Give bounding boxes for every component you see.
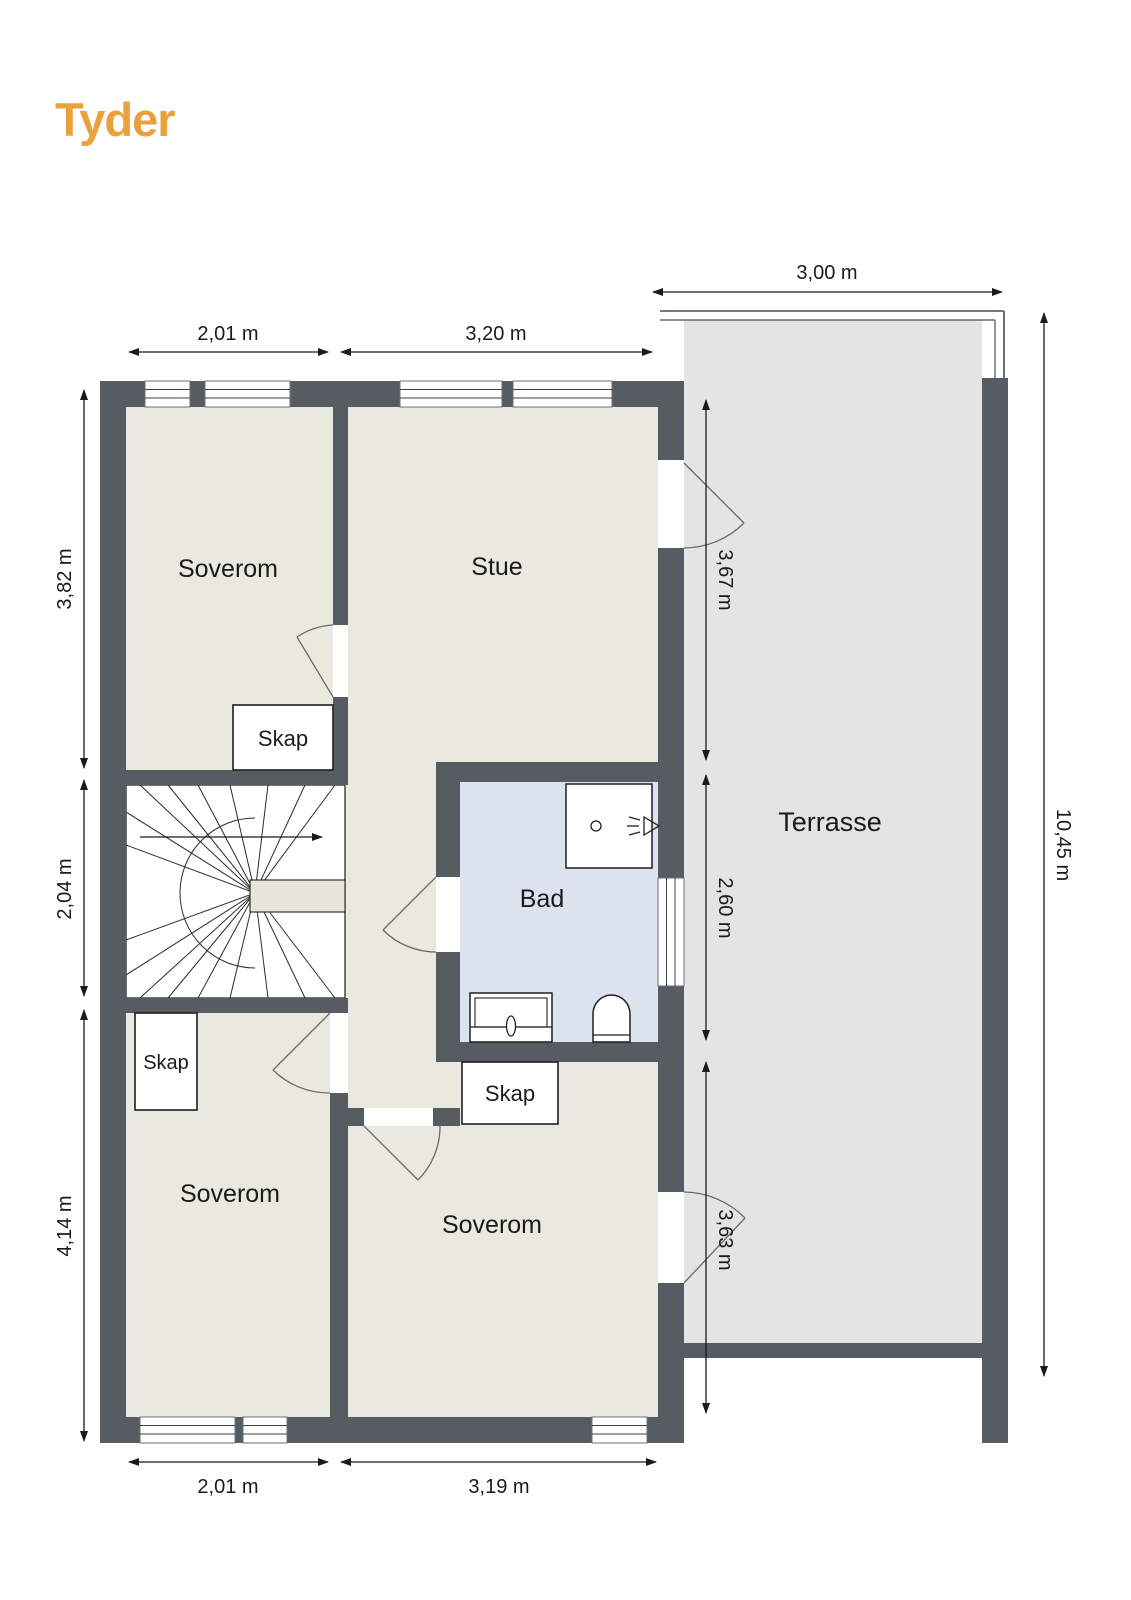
terrace-bottom-wall (684, 1343, 982, 1358)
dim-label: 3,00 m (796, 262, 857, 284)
dim-bottom-bedroom-width: 2,01 m (129, 1462, 328, 1498)
bathroom-left-wall-lower (436, 952, 460, 1042)
staircase (126, 785, 345, 998)
doorway-stub-left (348, 1108, 364, 1126)
closet-label: Skap (258, 726, 308, 751)
room-label-soverom-top: Soverom (178, 555, 278, 583)
window-stue-right (513, 381, 612, 407)
bathroom-top-wall (436, 762, 684, 782)
wall-between-bedrooms (330, 1093, 348, 1417)
sink (470, 993, 552, 1042)
bathroom-bottom-wall (436, 1042, 684, 1062)
window-bottom-bedroom-large (140, 1417, 235, 1443)
room-label-stue: Stue (471, 553, 522, 581)
opening-bedroom-terrace (658, 1192, 684, 1283)
exterior-left-wall (100, 381, 126, 1443)
dim-label: 2,04 m (54, 858, 76, 919)
room-label-bad: Bad (520, 885, 564, 913)
window-top-bedroom-large (205, 381, 290, 407)
dim-label: 3,63 m (714, 1209, 736, 1270)
dim-label: 3,82 m (54, 548, 76, 609)
wall-soverom-stue-lower (333, 697, 348, 770)
dim-terrace-height: 10,45 m (1044, 313, 1074, 1376)
dim-label: 3,20 m (465, 323, 526, 345)
dim-left-bedroom-height: 3,82 m (54, 390, 84, 768)
dim-bottom-middle-width: 3,19 m (341, 1462, 656, 1498)
opening-stue-terrace (658, 460, 684, 548)
dim-terrace-width: 3,00 m (653, 262, 1002, 292)
closet-label: Skap (485, 1081, 535, 1106)
dim-top-bedroom-width: 2,01 m (129, 323, 328, 352)
stair-landing (250, 880, 345, 912)
terrace-right-wall (982, 378, 1008, 1443)
room-label-soverom-bottom-middle: Soverom (442, 1211, 542, 1239)
wall-below-stairs (126, 998, 348, 1013)
dim-label: 4,14 m (54, 1195, 76, 1256)
doorway-stub-right (433, 1108, 460, 1126)
toilet (593, 995, 630, 1042)
terrace (660, 311, 1008, 1443)
faucet-icon (507, 1016, 516, 1036)
window-stue-left (400, 381, 502, 407)
dim-label: 2,60 m (714, 877, 736, 938)
dim-label: 2,01 m (197, 1476, 258, 1498)
closet-label: Skap (143, 1052, 189, 1074)
opening-bottom-middle-bedroom (364, 1108, 433, 1126)
shower (566, 784, 659, 868)
wall-above-stairs (126, 770, 348, 785)
room-label-soverom-bottom-left: Soverom (180, 1180, 280, 1208)
bathroom-left-wall-upper (436, 782, 460, 877)
dim-label: 3,19 m (468, 1476, 529, 1498)
dim-top-stue-width: 3,20 m (341, 323, 652, 352)
dim-label: 2,01 m (197, 323, 258, 345)
opening-top-bedroom (333, 625, 348, 697)
window-bottom-bedroom-small (243, 1417, 287, 1443)
floor-plan: Skap Skap Skap Soverom (0, 0, 1131, 1600)
opening-bathroom (436, 877, 460, 952)
dim-label: 10,45 m (1052, 809, 1074, 881)
wall-soverom-stue-upper (333, 407, 348, 625)
dim-left-lower-bedroom-height: 4,14 m (54, 1010, 84, 1441)
window-top-bedroom-small (145, 381, 190, 407)
room-label-terrasse: Terrasse (778, 807, 882, 837)
dim-left-stairs-height: 2,04 m (54, 780, 84, 996)
dim-label: 3,67 m (714, 549, 736, 610)
window-bathroom (658, 878, 684, 986)
window-bottom-middle-bedroom (592, 1417, 647, 1443)
opening-bottom-left-bedroom (330, 1013, 348, 1093)
